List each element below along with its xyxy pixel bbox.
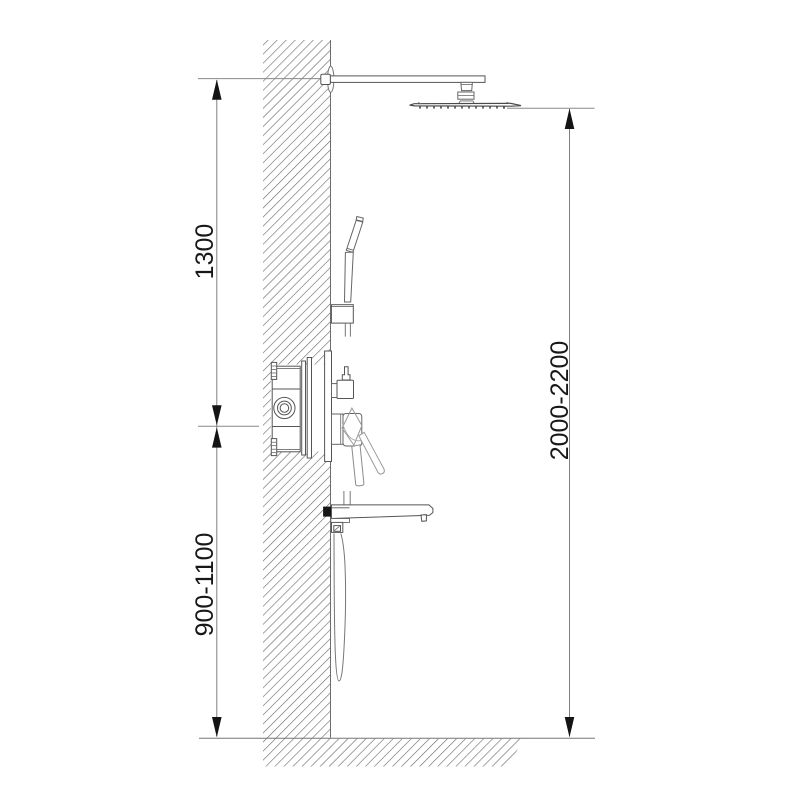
svg-text:2000-2200: 2000-2200 <box>546 341 574 461</box>
svg-text:1300: 1300 <box>191 224 219 280</box>
svg-text:900-1100: 900-1100 <box>191 533 219 637</box>
